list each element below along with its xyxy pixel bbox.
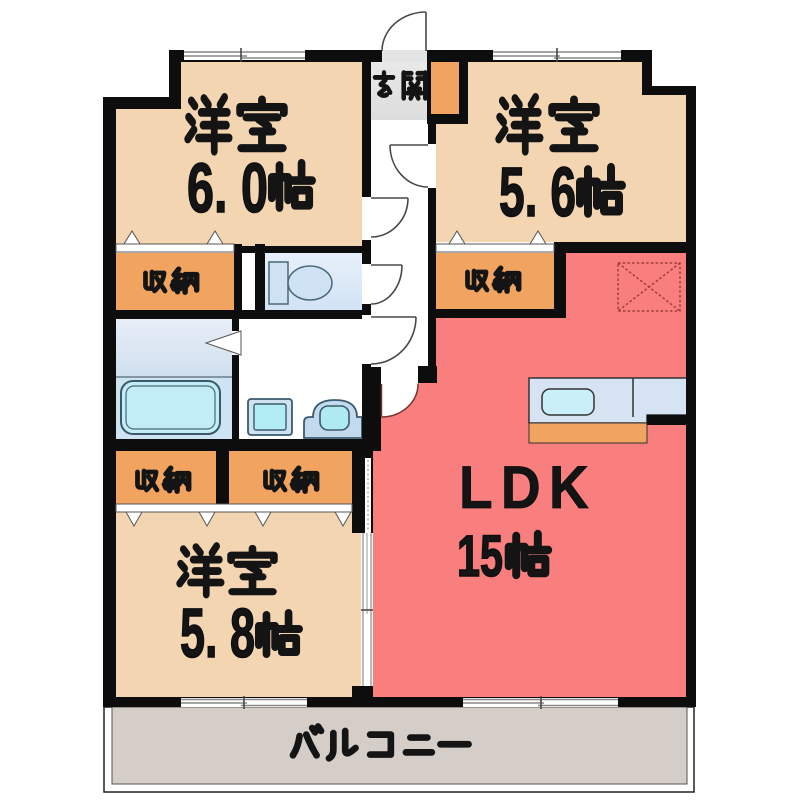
svg-text:LDK: LDK (459, 454, 597, 521)
svg-text:5. 6: 5. 6 (499, 153, 576, 231)
svg-text:15: 15 (457, 524, 503, 589)
svg-text:6. 0: 6. 0 (187, 149, 268, 227)
svg-text:5. 8: 5. 8 (180, 594, 255, 672)
